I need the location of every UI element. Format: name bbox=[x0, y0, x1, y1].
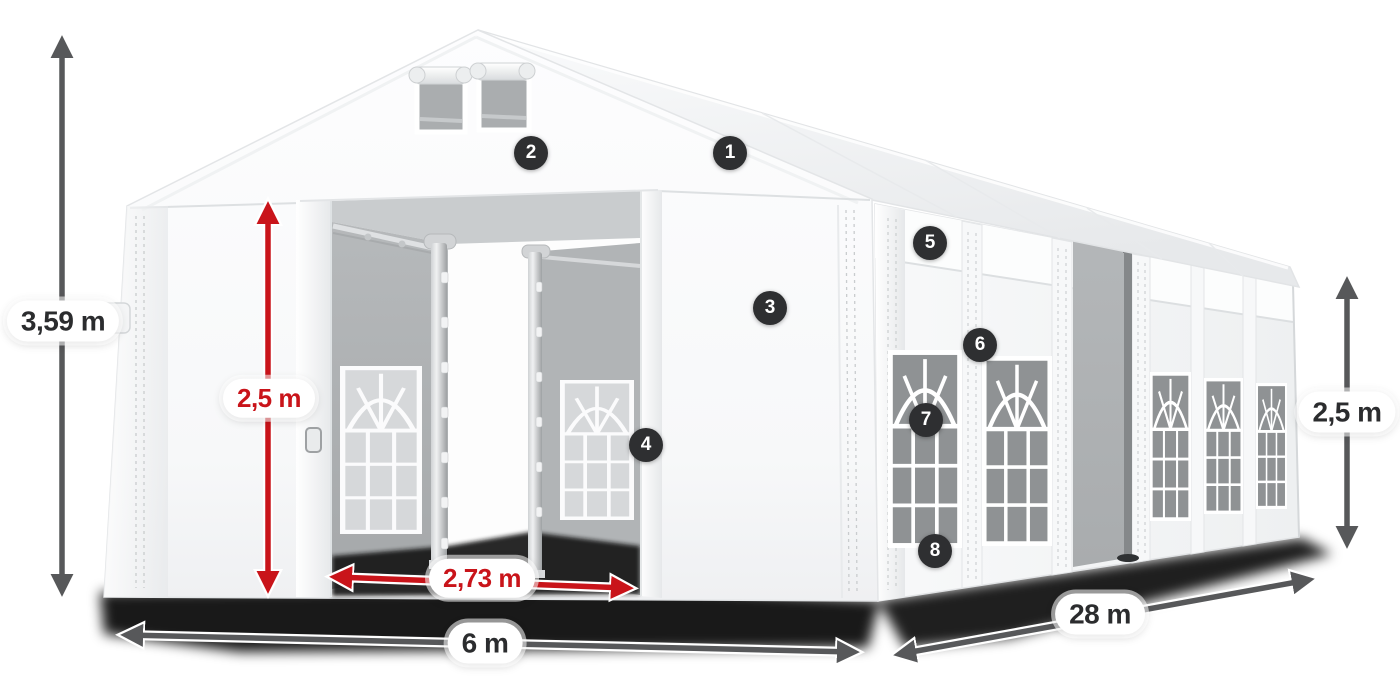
tent-dimension-diagram: 3,59 m 2,5 m 2,73 m 6 m 28 m 2,5 m 1 2 3… bbox=[0, 0, 1400, 700]
tent-illustration bbox=[0, 0, 1400, 700]
callout-badge-7[interactable]: 7 bbox=[909, 403, 943, 437]
side-window-3 bbox=[1151, 374, 1190, 520]
side-doorway-opening bbox=[1073, 227, 1139, 567]
label-entrance-height: 2,5 m bbox=[223, 379, 315, 418]
front-doorway-opening bbox=[332, 190, 640, 597]
side-window-4 bbox=[1205, 380, 1242, 513]
label-total-height: 3,59 m bbox=[7, 301, 119, 342]
interior-left-window bbox=[342, 368, 419, 532]
callout-badge-5[interactable]: 5 bbox=[913, 226, 947, 260]
side-window-1 bbox=[890, 352, 960, 545]
door-handle[interactable] bbox=[306, 428, 321, 452]
label-side-length: 28 m bbox=[1055, 594, 1145, 635]
callout-badge-2[interactable]: 2 bbox=[514, 136, 548, 170]
callout-badge-1[interactable]: 1 bbox=[713, 136, 747, 170]
side-window-2 bbox=[984, 358, 1050, 544]
door-frame-right-column bbox=[640, 189, 662, 598]
label-entrance-width: 2,73 m bbox=[429, 559, 535, 598]
label-front-width: 6 m bbox=[448, 623, 523, 664]
side-window-5 bbox=[1257, 384, 1286, 507]
callout-badge-4[interactable]: 4 bbox=[629, 428, 663, 462]
interior-panel-window bbox=[562, 382, 632, 519]
callout-badge-3[interactable]: 3 bbox=[753, 291, 787, 325]
callout-badge-8[interactable]: 8 bbox=[918, 534, 952, 568]
label-side-height: 2,5 m bbox=[1298, 392, 1395, 433]
gable-vent-left bbox=[409, 67, 472, 132]
callout-badge-6[interactable]: 6 bbox=[963, 328, 997, 362]
gable-vent-right bbox=[470, 63, 535, 130]
front-left-corner-post bbox=[100, 206, 168, 598]
side-door-pole bbox=[1124, 247, 1132, 557]
